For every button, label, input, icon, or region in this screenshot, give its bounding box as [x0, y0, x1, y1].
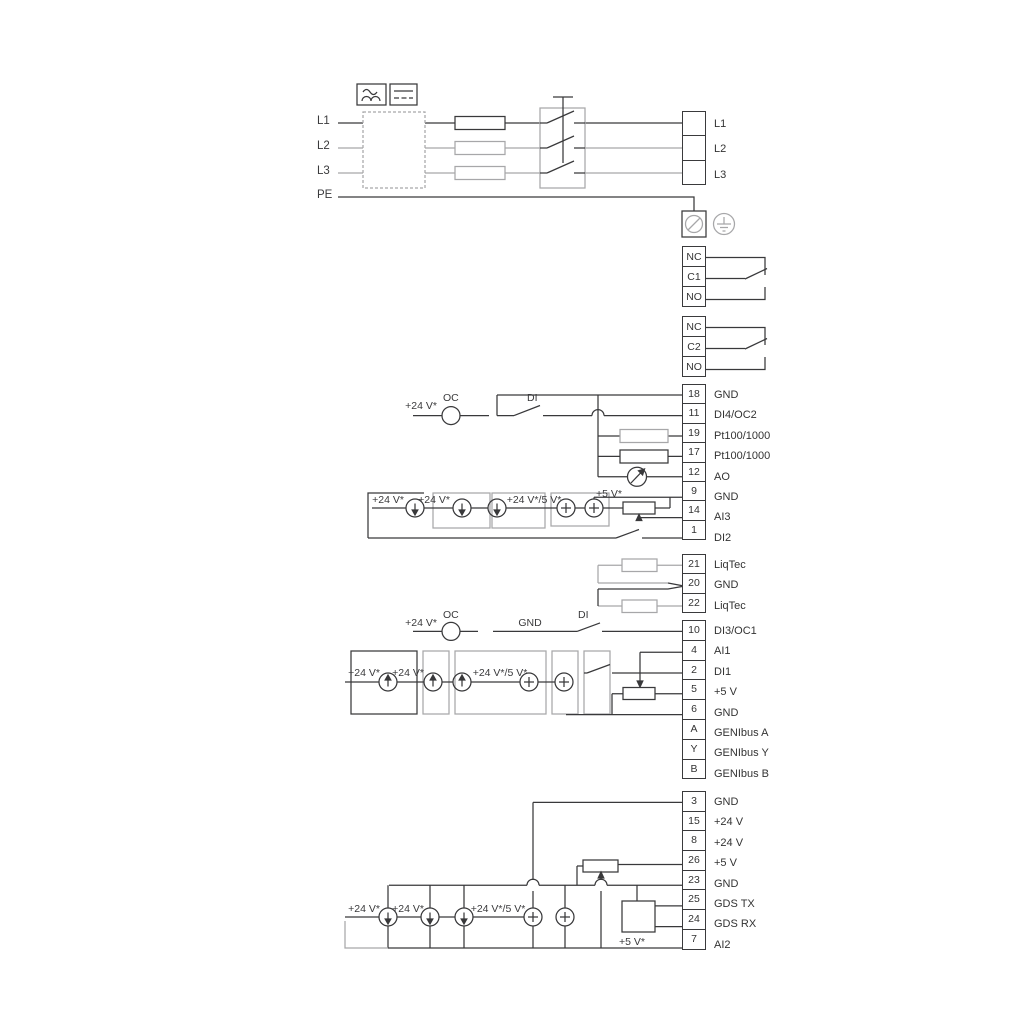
supply-label-24v: +24 V*: [382, 667, 424, 679]
terminal-number: 7: [682, 929, 706, 950]
potentiometer-ai3: [623, 502, 655, 514]
terminal-label: LiqTec: [714, 596, 824, 616]
terminal-label: GND: [714, 703, 824, 723]
mains-output-block: [682, 112, 706, 185]
wire-l2-l3: [338, 148, 682, 173]
gds-sensor-box: [622, 901, 655, 932]
terminal-number: 1: [682, 520, 706, 540]
terminal-label: L2: [714, 137, 824, 162]
terminal-label: GENIbus A: [714, 723, 824, 743]
relay-cell: C2: [682, 336, 706, 357]
terminal-label: +5 V: [714, 682, 824, 702]
potentiometer-ai2: [583, 860, 618, 872]
terminal-number: 19: [682, 423, 706, 443]
terminal-number: 8: [682, 830, 706, 851]
terminal-number: 12: [682, 462, 706, 482]
wiring-diagram-page: L1 L2 L3 PE L1 L2 L3 NC C1 NO NC C2 NO 1…: [0, 0, 1024, 1024]
supply-label-24v: +24 V*: [392, 617, 437, 629]
di-label: DI: [527, 392, 538, 404]
terminal-label: AO: [714, 467, 824, 487]
terminal-label: GENIbus Y: [714, 743, 824, 763]
supply-label-24v: +24 V*: [392, 400, 437, 412]
fuse-l2: [455, 142, 505, 155]
terminal-number: 24: [682, 909, 706, 930]
di4-pt100-ao-section: [413, 395, 682, 486]
io-block-4: 3 15 8 26 23 25 24 7: [682, 792, 706, 950]
relay2-contacts: [706, 328, 767, 370]
terminal-number: 15: [682, 811, 706, 832]
terminal-label: Pt100/1000: [714, 426, 824, 446]
terminal-label: GND: [714, 874, 824, 894]
terminal-cell: [682, 111, 706, 136]
wiper-arrow: [637, 681, 643, 687]
terminal-label: DI2: [714, 528, 824, 548]
relay1-lever: [745, 269, 767, 280]
terminal-number: B: [682, 759, 706, 780]
terminal-label: DI3/OC1: [714, 621, 824, 641]
terminal-number: 3: [682, 791, 706, 812]
relay2-block: NC C2 NO: [682, 317, 706, 377]
terminal-label: GDS TX: [714, 894, 824, 914]
terminal-label: Pt100/1000: [714, 446, 824, 466]
supply-label-24v-5v: +24 V*/5 V*: [453, 903, 543, 915]
terminal-label: LiqTec: [714, 555, 824, 575]
ac-symbol-icon: [357, 84, 386, 105]
supply-label-24v: +24 V*: [360, 494, 404, 506]
pt100-sensor-2: [620, 450, 668, 463]
terminal-label: +24 V: [714, 833, 824, 853]
terminal-number: 21: [682, 554, 706, 574]
wire-hop: [527, 879, 607, 885]
io-block-3-labels: DI3/OC1 AI1 DI1 +5 V GND GENIbus A GENIb…: [714, 621, 824, 784]
relay1-contacts: [706, 258, 767, 300]
terminal-number: Y: [682, 739, 706, 760]
gnd-wire-label: GND: [505, 617, 555, 629]
terminal-label: L3: [714, 163, 824, 188]
io-block-1-labels: GND DI4/OC2 Pt100/1000 Pt100/1000 AO GND…: [714, 385, 824, 548]
terminal-label: L1: [714, 112, 824, 137]
supply-label-24v: +24 V*: [382, 903, 424, 915]
terminal-number: 14: [682, 500, 706, 520]
supply-label-5v: +5 V*: [596, 488, 622, 500]
terminal-label: AI3: [714, 507, 824, 527]
terminal-label: GND: [714, 575, 824, 595]
io-block-1: 18 11 19 17 12 9 14 1: [682, 385, 706, 540]
protective-earth-icon: [714, 214, 735, 235]
analog-output-meter-icon: [628, 467, 647, 486]
pt100-sensor-1: [620, 430, 668, 443]
terminal-label: GDS RX: [714, 914, 824, 934]
terminal-label: AI2: [714, 935, 824, 955]
terminal-number: 10: [682, 620, 706, 641]
relay-cell: NC: [682, 316, 706, 337]
io-block-2: 21 20 22: [682, 555, 706, 613]
wiring-diagram-canvas: [0, 0, 1024, 1024]
mains-label-l1: L1: [317, 115, 330, 127]
relay-cell: NC: [682, 246, 706, 267]
terminal-number: 25: [682, 889, 706, 910]
fuse-l1: [455, 117, 505, 130]
terminal-label: AI1: [714, 641, 824, 661]
wiper-arrow: [598, 872, 604, 878]
contactor-switch: [540, 97, 585, 188]
fuse-l3: [455, 167, 505, 180]
relay-cell: NO: [682, 356, 706, 377]
dc-symbol-icon: [390, 84, 417, 105]
terminal-number: 22: [682, 593, 706, 613]
terminal-number: 9: [682, 481, 706, 501]
gds-ai2-section: [345, 802, 682, 948]
terminal-cell: [682, 135, 706, 160]
terminal-label: +24 V: [714, 812, 824, 832]
di-label: DI: [578, 609, 589, 621]
mains-section: [338, 84, 735, 237]
terminal-label: DI4/OC2: [714, 405, 824, 425]
ai1-di1-section: [345, 651, 682, 715]
liqtec-sensor-2: [622, 600, 657, 613]
terminal-label: GND: [714, 487, 824, 507]
terminal-number: 18: [682, 384, 706, 404]
terminal-number: 4: [682, 640, 706, 661]
mains-label-l2: L2: [317, 140, 330, 152]
terminal-number: 20: [682, 573, 706, 593]
pe-screw-terminal: [682, 211, 706, 237]
supply-label-24v: +24 V*: [338, 667, 380, 679]
mains-label-l3: L3: [317, 165, 330, 177]
wire-pe: [338, 197, 694, 211]
potentiometer-ai1: [623, 688, 655, 700]
io-block-2-labels: LiqTec GND LiqTec: [714, 555, 824, 616]
relay-cell: NO: [682, 286, 706, 307]
terminal-number: 5: [682, 679, 706, 700]
relay-cell: C1: [682, 266, 706, 287]
supply-label-5v: +5 V*: [604, 936, 660, 948]
terminal-number: 17: [682, 442, 706, 462]
terminal-label: GND: [714, 385, 824, 405]
open-collector-circle: [442, 622, 460, 640]
supply-label-24v: +24 V*: [406, 494, 450, 506]
io-block-3: 10 4 2 5 6 A Y B: [682, 621, 706, 779]
terminal-label: +5 V: [714, 853, 824, 873]
terminal-number: 11: [682, 403, 706, 423]
liqtec-sensor-1: [622, 559, 657, 572]
emc-filter-box: [363, 112, 425, 188]
terminal-number: 26: [682, 850, 706, 871]
terminal-cell: [682, 160, 706, 185]
terminal-number: A: [682, 719, 706, 740]
relay1-block: NC C1 NO: [682, 247, 706, 307]
liqtec-section: [598, 559, 682, 613]
terminal-label: GENIbus B: [714, 764, 824, 784]
terminal-number: 2: [682, 660, 706, 681]
terminal-label: GND: [714, 792, 824, 812]
terminal-number: 23: [682, 870, 706, 891]
supply-label-24v: +24 V*: [338, 903, 380, 915]
mains-output-labels: L1 L2 L3: [714, 112, 824, 188]
open-collector-circle: [442, 407, 460, 425]
oc-label: OC: [443, 392, 459, 404]
relay2-lever: [745, 339, 767, 350]
io-block-4-labels: GND +24 V +24 V +5 V GND GDS TX GDS RX A…: [714, 792, 824, 955]
mains-label-pe: PE: [317, 189, 332, 201]
supply-label-24v-5v: +24 V*/5 V*: [455, 667, 545, 679]
terminal-number: 6: [682, 699, 706, 720]
supply-label-24v-5v: +24 V*/5 V*: [489, 494, 579, 506]
oc-label: OC: [443, 609, 459, 621]
terminal-label: DI1: [714, 662, 824, 682]
